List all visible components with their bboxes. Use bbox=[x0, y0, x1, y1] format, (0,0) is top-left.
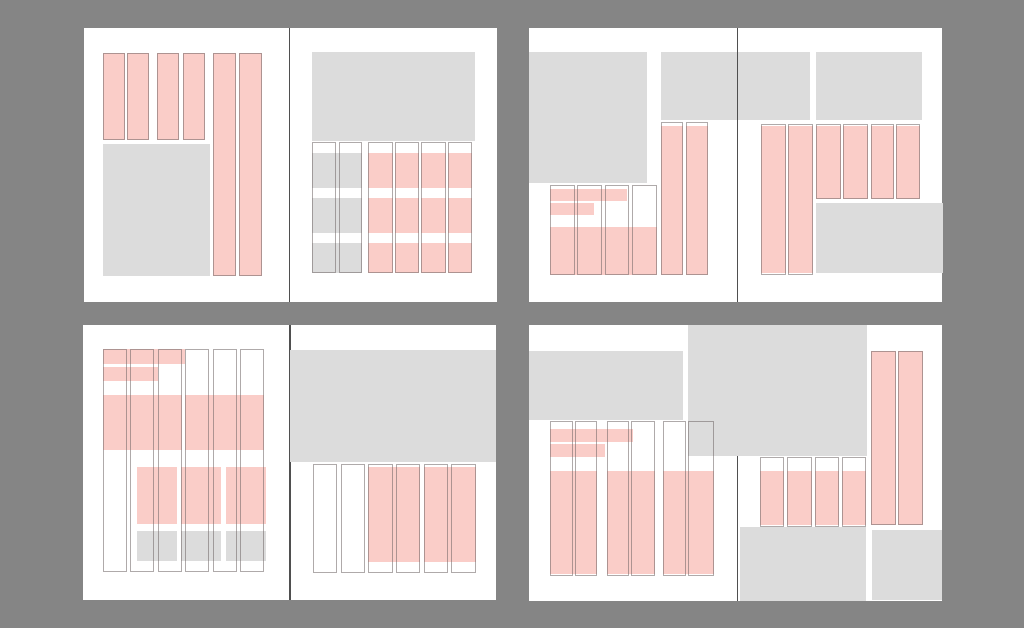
spread-top-right bbox=[529, 28, 942, 302]
image-placeholder-block bbox=[740, 527, 866, 601]
column-outline bbox=[575, 421, 597, 576]
column-outline bbox=[815, 457, 839, 527]
column-outline bbox=[424, 464, 448, 573]
column-outline bbox=[421, 142, 446, 273]
spread-bottom-right bbox=[529, 325, 942, 602]
column-outline bbox=[313, 464, 337, 573]
column-outline bbox=[631, 421, 655, 576]
image-placeholder-block bbox=[290, 350, 496, 462]
column-outline bbox=[368, 464, 392, 573]
image-placeholder-block bbox=[529, 52, 647, 183]
column-outline bbox=[787, 457, 811, 527]
column-outline bbox=[213, 349, 237, 571]
column-outline bbox=[395, 142, 420, 273]
column-outline bbox=[871, 124, 894, 199]
column-outline bbox=[663, 421, 686, 576]
column-outline bbox=[157, 53, 179, 140]
column-outline bbox=[761, 124, 786, 276]
column-outline bbox=[632, 185, 657, 275]
spine-line bbox=[737, 28, 739, 302]
column-outline bbox=[550, 421, 573, 576]
column-outline bbox=[103, 349, 127, 571]
image-placeholder-block bbox=[312, 52, 475, 141]
spread-bottom-left bbox=[83, 325, 496, 599]
column-outline bbox=[130, 349, 154, 571]
column-outline bbox=[550, 185, 575, 275]
spread-top-left bbox=[84, 28, 497, 302]
column-outline bbox=[312, 142, 336, 273]
image-placeholder-block bbox=[872, 530, 942, 600]
column-outline bbox=[451, 464, 475, 573]
layout-templates-canvas bbox=[0, 0, 1024, 628]
column-outline bbox=[239, 53, 262, 276]
column-outline bbox=[213, 53, 236, 276]
column-outline bbox=[605, 185, 630, 275]
column-outline bbox=[103, 53, 125, 140]
column-outline bbox=[158, 349, 182, 571]
column-outline bbox=[341, 464, 365, 573]
column-outline bbox=[688, 421, 714, 576]
image-placeholder-block bbox=[816, 203, 943, 273]
column-outline bbox=[607, 421, 630, 576]
column-outline bbox=[896, 124, 920, 199]
column-outline bbox=[760, 457, 784, 527]
column-outline bbox=[240, 349, 264, 571]
column-outline bbox=[577, 185, 602, 275]
column-outline bbox=[183, 53, 205, 140]
column-outline bbox=[843, 124, 868, 199]
column-outline bbox=[127, 53, 149, 140]
column-outline bbox=[842, 457, 866, 527]
image-placeholder-block bbox=[661, 52, 810, 120]
image-placeholder-block bbox=[816, 52, 922, 120]
image-placeholder-block bbox=[103, 144, 211, 277]
column-outline bbox=[368, 142, 393, 273]
column-outline bbox=[788, 124, 813, 276]
column-outline bbox=[871, 351, 896, 526]
column-outline bbox=[396, 464, 420, 573]
spine-line bbox=[289, 28, 291, 302]
column-outline bbox=[661, 122, 683, 275]
column-outline bbox=[816, 124, 841, 199]
column-outline bbox=[686, 122, 709, 275]
image-placeholder-block bbox=[688, 325, 866, 457]
column-outline bbox=[448, 142, 473, 273]
column-outline bbox=[339, 142, 363, 273]
column-outline bbox=[185, 349, 209, 571]
column-outline bbox=[898, 351, 923, 526]
image-placeholder-block bbox=[529, 351, 683, 419]
